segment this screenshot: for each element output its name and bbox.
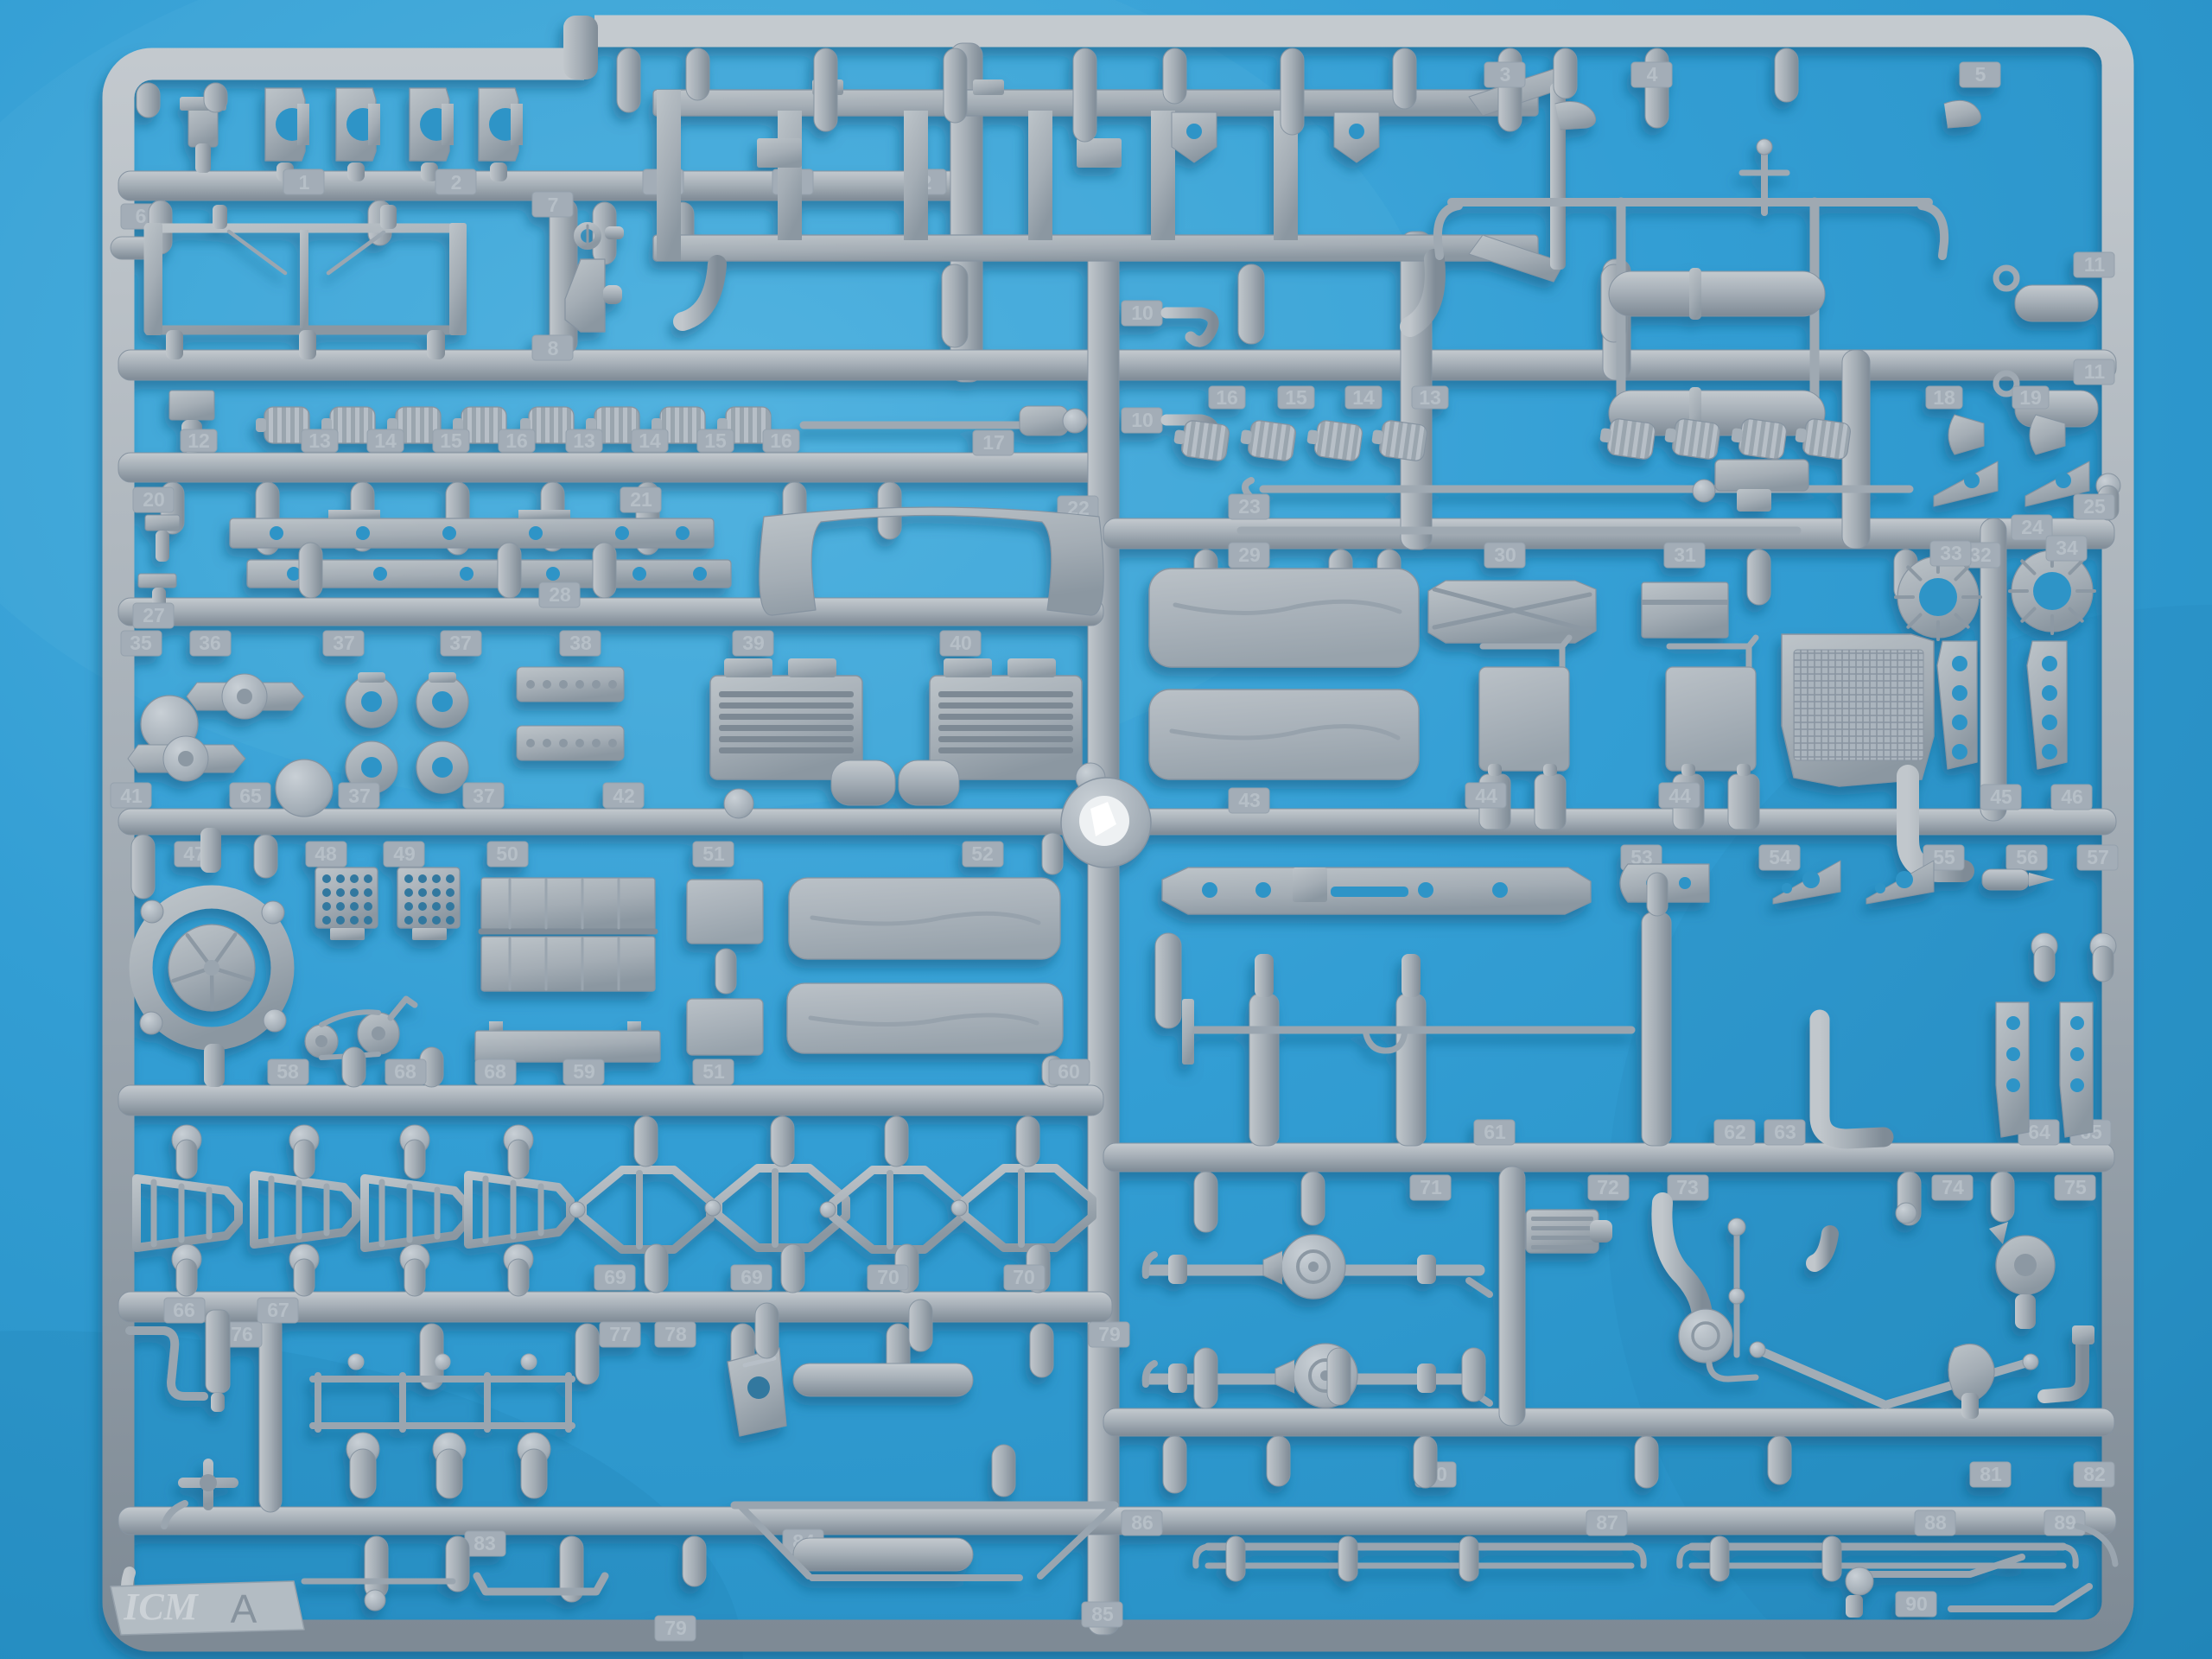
svg-text:34: 34 xyxy=(2056,537,2078,559)
svg-text:13: 13 xyxy=(573,429,595,452)
svg-text:69: 69 xyxy=(741,1266,763,1288)
svg-text:68: 68 xyxy=(484,1060,506,1083)
svg-text:58: 58 xyxy=(276,1060,299,1083)
svg-text:63: 63 xyxy=(1774,1121,1796,1143)
svg-text:13: 13 xyxy=(1419,386,1441,409)
svg-text:64: 64 xyxy=(2028,1121,2050,1143)
svg-text:75: 75 xyxy=(2064,1176,2087,1198)
svg-text:ICM: ICM xyxy=(123,1586,199,1628)
svg-text:16: 16 xyxy=(770,429,792,452)
svg-text:13: 13 xyxy=(308,429,331,452)
svg-text:86: 86 xyxy=(1131,1511,1154,1534)
svg-text:70: 70 xyxy=(1013,1266,1035,1288)
svg-text:78: 78 xyxy=(664,1323,687,1345)
svg-text:90: 90 xyxy=(1905,1592,1928,1615)
svg-text:55: 55 xyxy=(1933,846,1955,868)
svg-text:54: 54 xyxy=(1769,846,1791,868)
svg-text:66: 66 xyxy=(173,1299,195,1321)
svg-text:11: 11 xyxy=(2084,360,2106,383)
svg-text:33: 33 xyxy=(1940,542,1962,564)
svg-text:15: 15 xyxy=(440,429,462,452)
svg-text:15: 15 xyxy=(1285,386,1307,409)
svg-text:19: 19 xyxy=(2019,386,2042,409)
svg-text:62: 62 xyxy=(1724,1121,1746,1143)
svg-text:37: 37 xyxy=(449,632,472,654)
svg-text:81: 81 xyxy=(1980,1463,2002,1485)
svg-text:12: 12 xyxy=(188,429,210,452)
svg-text:71: 71 xyxy=(1420,1176,1442,1198)
svg-text:A: A xyxy=(231,1586,257,1631)
svg-text:88: 88 xyxy=(1924,1511,1947,1534)
svg-text:87: 87 xyxy=(1596,1511,1618,1534)
svg-text:32: 32 xyxy=(1969,543,1992,566)
svg-text:43: 43 xyxy=(1238,789,1261,811)
svg-text:35: 35 xyxy=(130,632,152,654)
svg-text:36: 36 xyxy=(199,632,221,654)
svg-text:37: 37 xyxy=(333,632,355,654)
svg-text:77: 77 xyxy=(609,1323,632,1345)
svg-text:83: 83 xyxy=(474,1532,496,1554)
svg-text:65: 65 xyxy=(239,785,262,807)
svg-text:45: 45 xyxy=(1990,785,2012,808)
svg-text:25: 25 xyxy=(2083,495,2106,518)
svg-text:8: 8 xyxy=(548,337,559,359)
svg-text:89: 89 xyxy=(2054,1511,2076,1534)
svg-text:41: 41 xyxy=(120,785,143,807)
svg-text:51: 51 xyxy=(702,842,725,865)
svg-text:67: 67 xyxy=(267,1299,289,1321)
svg-text:29: 29 xyxy=(1238,543,1261,566)
svg-text:27: 27 xyxy=(143,604,165,626)
svg-text:76: 76 xyxy=(231,1323,253,1345)
svg-text:59: 59 xyxy=(573,1060,595,1083)
svg-text:20: 20 xyxy=(143,488,165,511)
svg-text:14: 14 xyxy=(1352,386,1375,409)
svg-text:37: 37 xyxy=(348,785,371,807)
svg-text:18: 18 xyxy=(1933,386,1955,409)
svg-text:72: 72 xyxy=(1597,1176,1619,1198)
svg-text:50: 50 xyxy=(496,842,518,865)
svg-text:56: 56 xyxy=(2016,846,2038,868)
svg-text:37: 37 xyxy=(473,785,495,807)
svg-text:51: 51 xyxy=(702,1060,725,1083)
svg-text:10: 10 xyxy=(1131,302,1154,324)
svg-text:14: 14 xyxy=(639,429,661,452)
svg-text:2: 2 xyxy=(451,171,462,194)
svg-text:85: 85 xyxy=(1091,1603,1114,1625)
svg-text:74: 74 xyxy=(1942,1176,1964,1198)
svg-text:31: 31 xyxy=(1674,543,1696,566)
svg-text:16: 16 xyxy=(1216,386,1238,409)
svg-text:39: 39 xyxy=(742,632,765,654)
svg-text:49: 49 xyxy=(393,842,416,865)
svg-text:44: 44 xyxy=(1475,785,1497,807)
svg-text:11: 11 xyxy=(2084,253,2106,276)
svg-text:42: 42 xyxy=(613,785,635,807)
svg-text:46: 46 xyxy=(2061,785,2083,808)
svg-text:7: 7 xyxy=(548,194,559,216)
svg-text:30: 30 xyxy=(1494,543,1516,566)
svg-text:38: 38 xyxy=(569,632,592,654)
svg-text:61: 61 xyxy=(1484,1121,1506,1143)
svg-text:82: 82 xyxy=(2083,1463,2106,1485)
svg-text:48: 48 xyxy=(315,842,337,865)
svg-text:5: 5 xyxy=(1975,63,1986,86)
svg-text:52: 52 xyxy=(971,842,994,865)
svg-text:15: 15 xyxy=(704,429,727,452)
svg-text:6: 6 xyxy=(136,205,147,227)
svg-text:44: 44 xyxy=(1669,785,1691,807)
svg-text:60: 60 xyxy=(1058,1060,1080,1083)
svg-text:79: 79 xyxy=(1098,1323,1121,1345)
svg-text:4: 4 xyxy=(1647,63,1658,86)
svg-text:40: 40 xyxy=(950,632,972,654)
svg-text:57: 57 xyxy=(2087,846,2109,868)
svg-text:69: 69 xyxy=(604,1266,626,1288)
svg-text:21: 21 xyxy=(630,488,652,511)
svg-text:23: 23 xyxy=(1238,495,1261,518)
svg-text:28: 28 xyxy=(549,583,571,606)
svg-text:24: 24 xyxy=(2021,516,2044,538)
svg-text:79: 79 xyxy=(664,1617,687,1639)
svg-text:3: 3 xyxy=(1500,63,1511,86)
svg-text:10: 10 xyxy=(1131,409,1154,431)
svg-text:73: 73 xyxy=(1676,1176,1699,1198)
svg-text:16: 16 xyxy=(505,429,528,452)
svg-text:17: 17 xyxy=(982,431,1005,454)
svg-text:14: 14 xyxy=(374,429,397,452)
svg-text:70: 70 xyxy=(877,1266,899,1288)
svg-text:1: 1 xyxy=(299,171,310,194)
svg-text:68: 68 xyxy=(394,1060,416,1083)
